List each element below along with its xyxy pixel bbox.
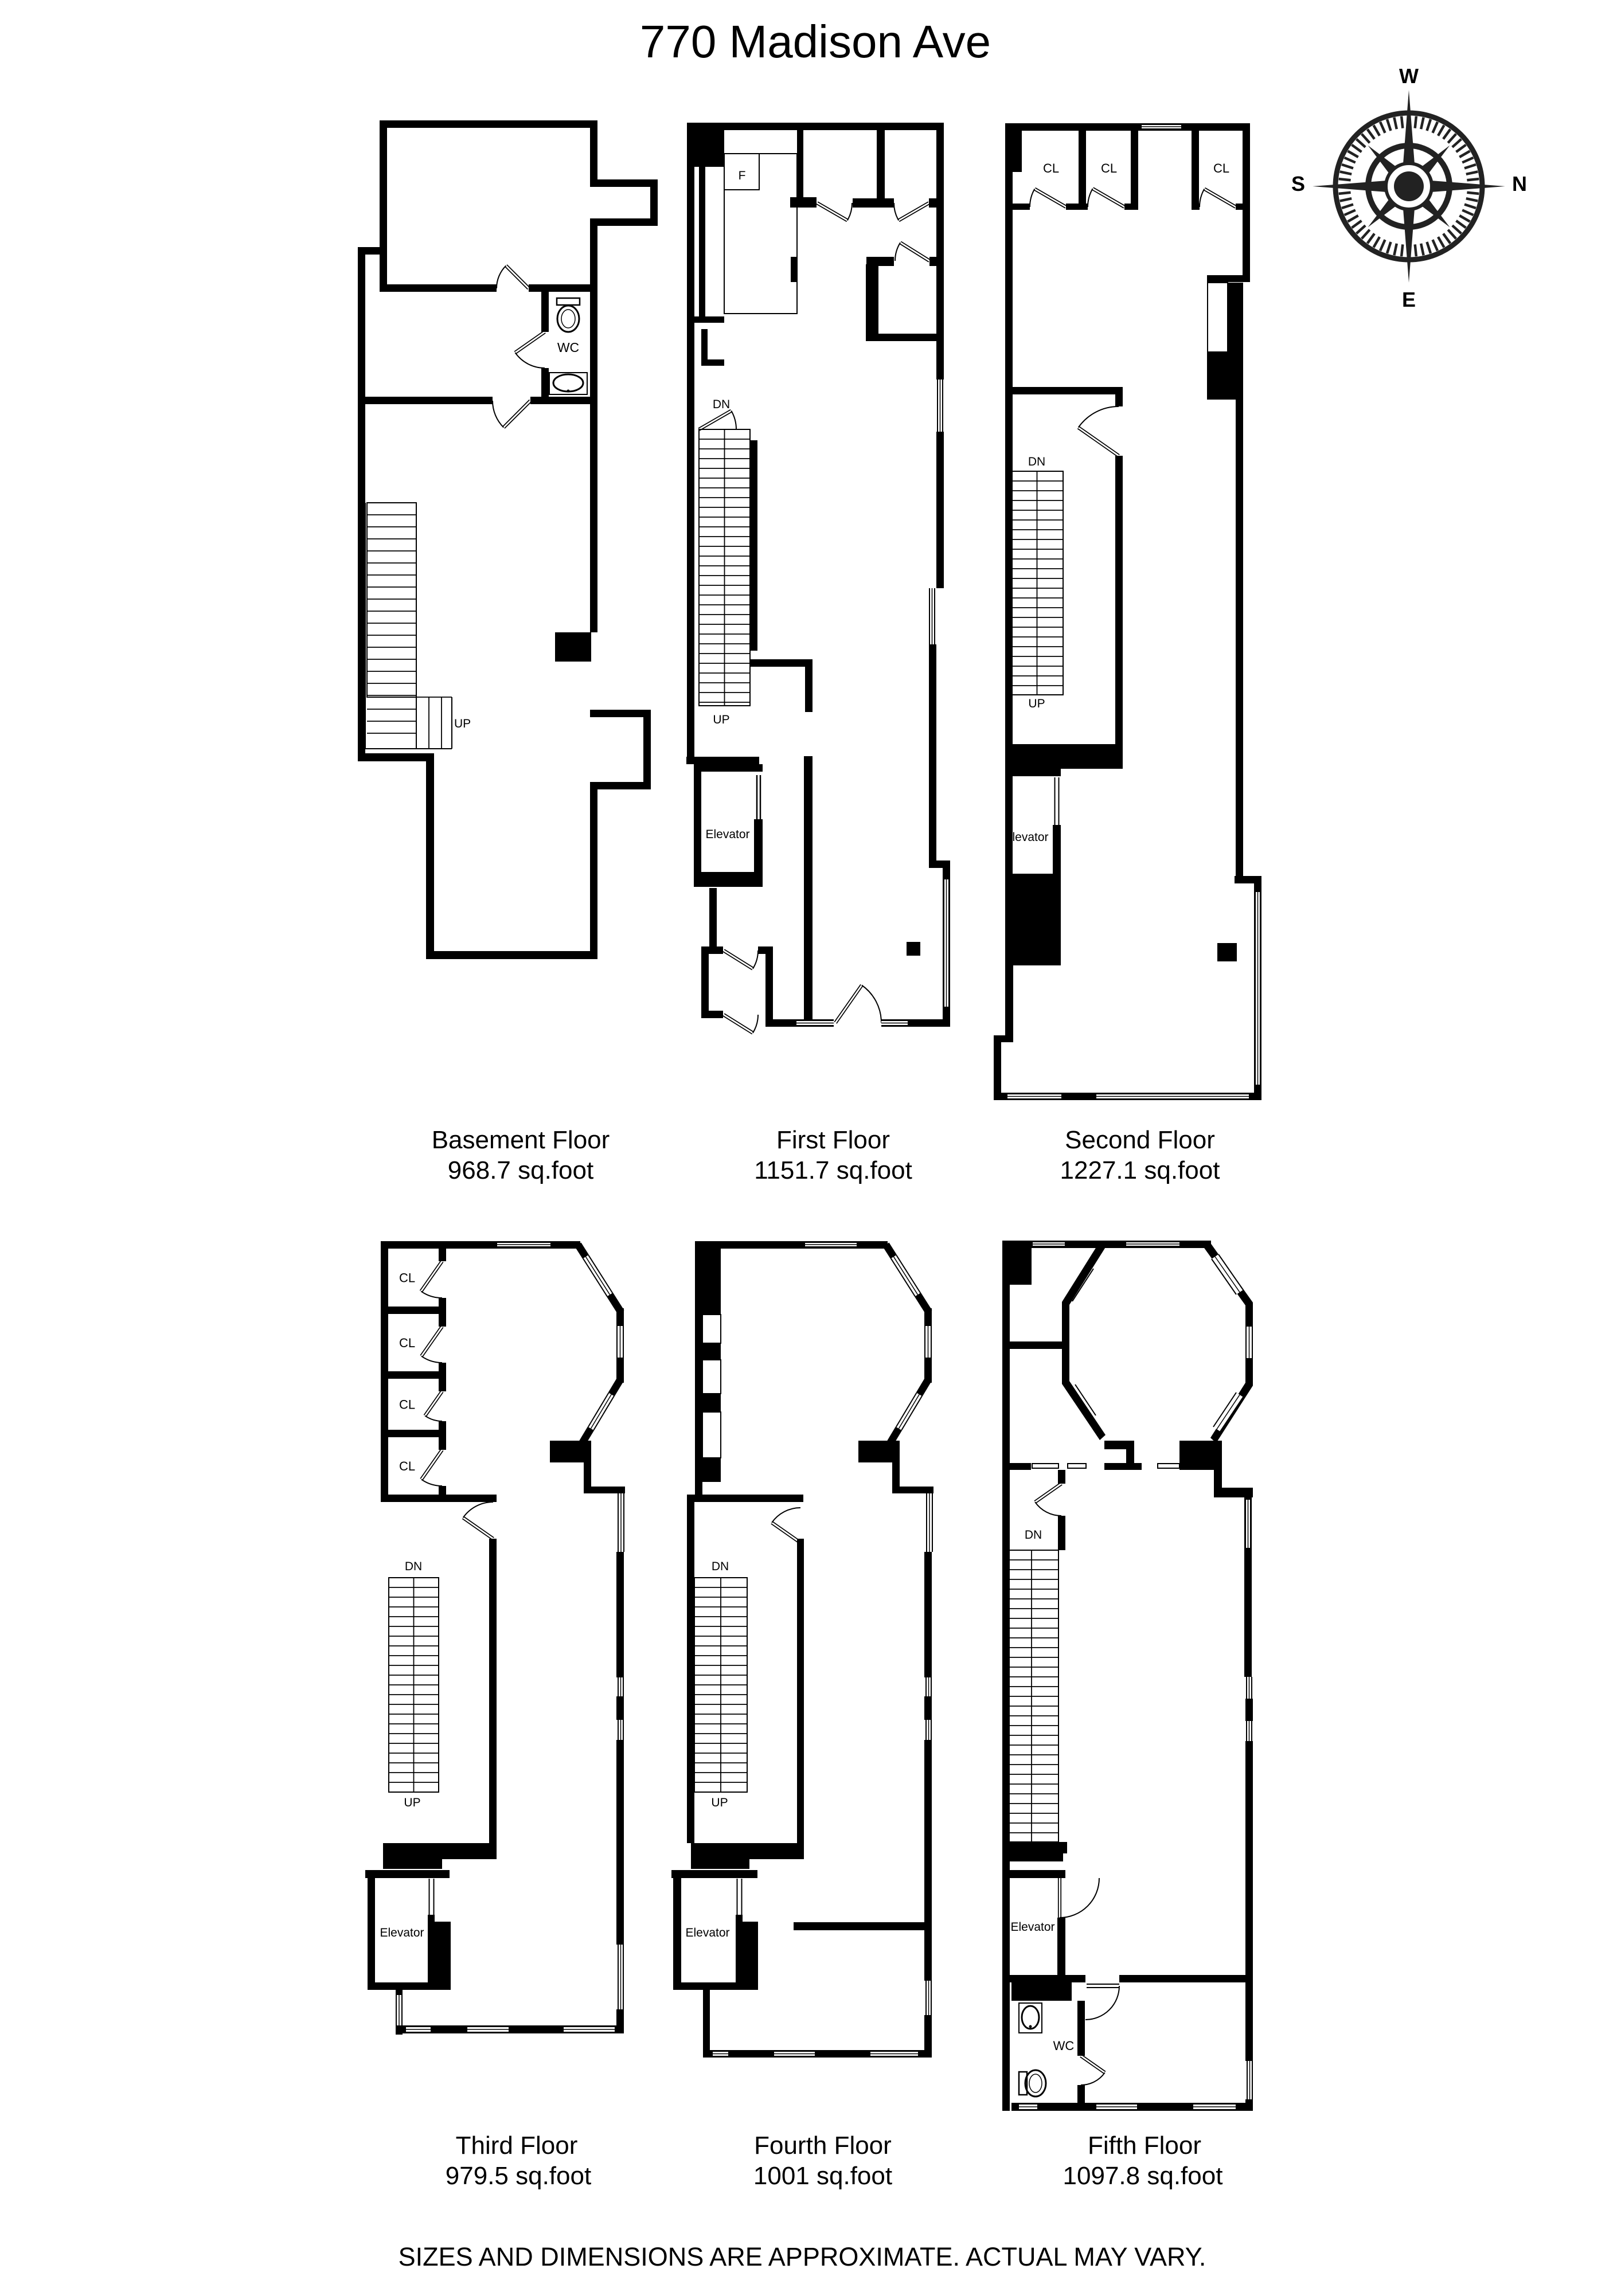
svg-text:E: E bbox=[1402, 288, 1416, 311]
svg-text:SIZES AND DIMENSIONS ARE APPRO: SIZES AND DIMENSIONS ARE APPROXIMATE. AC… bbox=[399, 2242, 1206, 2271]
svg-text:Fifth Floor: Fifth Floor bbox=[1088, 2131, 1201, 2160]
svg-text:DN: DN bbox=[713, 398, 730, 411]
svg-text:UP: UP bbox=[454, 717, 471, 730]
svg-text:CL: CL bbox=[399, 1336, 415, 1350]
svg-text:1151.7 sq.foot: 1151.7 sq.foot bbox=[754, 1156, 912, 1184]
svg-text:Elevator: Elevator bbox=[685, 1926, 729, 1939]
svg-text:UP: UP bbox=[1028, 697, 1045, 710]
svg-text:Elevator: Elevator bbox=[1004, 831, 1048, 844]
svg-text:Fourth Floor: Fourth Floor bbox=[754, 2131, 892, 2160]
svg-text:W: W bbox=[1399, 64, 1419, 88]
svg-text:CL: CL bbox=[1043, 161, 1059, 175]
svg-text:First Floor: First Floor bbox=[776, 1126, 890, 1154]
svg-text:N: N bbox=[1512, 172, 1527, 195]
svg-text:DN: DN bbox=[1025, 1528, 1042, 1542]
svg-text:1097.8 sq.foot: 1097.8 sq.foot bbox=[1063, 2162, 1223, 2190]
svg-text:F: F bbox=[739, 169, 746, 182]
svg-text:S: S bbox=[1291, 172, 1305, 195]
svg-text:1001 sq.foot: 1001 sq.foot bbox=[753, 2162, 892, 2190]
svg-text:DN: DN bbox=[405, 1560, 422, 1573]
svg-text:CL: CL bbox=[1213, 161, 1229, 175]
svg-text:UP: UP bbox=[711, 1796, 728, 1809]
svg-text:DN: DN bbox=[1028, 455, 1045, 468]
svg-text:UP: UP bbox=[713, 713, 729, 726]
svg-text:Elevator: Elevator bbox=[380, 1926, 424, 1939]
svg-text:CL: CL bbox=[399, 1398, 415, 1412]
svg-text:Second Floor: Second Floor bbox=[1065, 1126, 1215, 1154]
svg-text:WC: WC bbox=[1053, 2039, 1075, 2053]
svg-text:968.7 sq.foot: 968.7 sq.foot bbox=[448, 1156, 593, 1184]
svg-text:1227.1 sq.foot: 1227.1 sq.foot bbox=[1060, 1156, 1220, 1184]
svg-text:Elevator: Elevator bbox=[1010, 1920, 1054, 1934]
svg-text:Basement Floor: Basement Floor bbox=[432, 1126, 610, 1154]
svg-text:CL: CL bbox=[399, 1459, 415, 1473]
svg-text:CL: CL bbox=[399, 1271, 415, 1285]
svg-text:WC: WC bbox=[557, 340, 579, 355]
svg-text:DN: DN bbox=[712, 1560, 729, 1573]
svg-text:CL: CL bbox=[1101, 161, 1117, 175]
svg-text:770 Madison Ave: 770 Madison Ave bbox=[640, 16, 991, 67]
svg-text:UP: UP bbox=[404, 1796, 420, 1809]
svg-text:Elevator: Elevator bbox=[705, 828, 749, 841]
svg-text:979.5 sq.foot: 979.5 sq.foot bbox=[446, 2162, 591, 2190]
svg-text:Third Floor: Third Floor bbox=[456, 2131, 578, 2160]
